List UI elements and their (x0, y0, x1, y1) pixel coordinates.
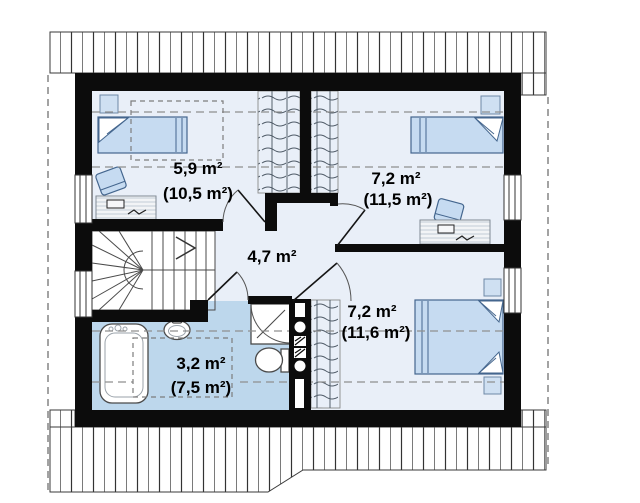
bathtub (100, 324, 148, 403)
floor-bathroom-door-recess (208, 301, 248, 322)
roof-eaves-corner-top-right (521, 73, 546, 95)
floor-area-label-bathroom: (7,5 m²) (171, 378, 231, 397)
window-left-top (75, 175, 92, 223)
nightstand (484, 279, 501, 296)
area-label-hall: 4,7 m² (247, 247, 296, 266)
desk (420, 220, 490, 244)
floor-area-label-bedroom-bottom-right: (11,6 m²) (342, 323, 411, 342)
window-right-top (504, 175, 521, 220)
wardrobe-bedroom-top-right (311, 91, 338, 193)
window-left-bottom (75, 271, 92, 317)
nightstand (100, 95, 118, 113)
area-label-bedroom-top-right: 7,2 m² (371, 169, 420, 188)
desk (96, 196, 156, 220)
window-right-bottom (504, 268, 521, 313)
area-label-bedroom-bottom-right: 7,2 m² (347, 302, 396, 321)
roof-eaves-corner-bottom-left (50, 410, 75, 427)
floor-plan: 5,9 m² (10,5 m²) 7,2 m² (11,5 m²) 4,7 m²… (0, 0, 640, 503)
nightstand (481, 96, 500, 114)
floor-area-label-bedroom-top-right: (11,5 m²) (364, 190, 433, 209)
desk-item (107, 200, 124, 208)
wardrobe-bedroom-bottom-right (311, 300, 340, 408)
area-label-bathroom: 3,2 m² (176, 354, 225, 373)
toilet (256, 348, 290, 372)
floor-plan-canvas: 5,9 m² (10,5 m²) 7,2 m² (11,5 m²) 4,7 m²… (0, 0, 640, 503)
area-label-bedroom-top-left: 5,9 m² (173, 159, 222, 178)
roof-eaves-bottom (50, 427, 546, 492)
roof-eaves-top (50, 32, 546, 73)
roof-eaves-corner-bottom-right (521, 410, 546, 427)
desk-item (438, 225, 454, 233)
wardrobe-bedroom-top-left (258, 91, 300, 193)
floor-area-label-bedroom-top-left: (10,5 m²) (163, 184, 233, 203)
shower (251, 304, 290, 344)
nightstand (484, 377, 501, 394)
